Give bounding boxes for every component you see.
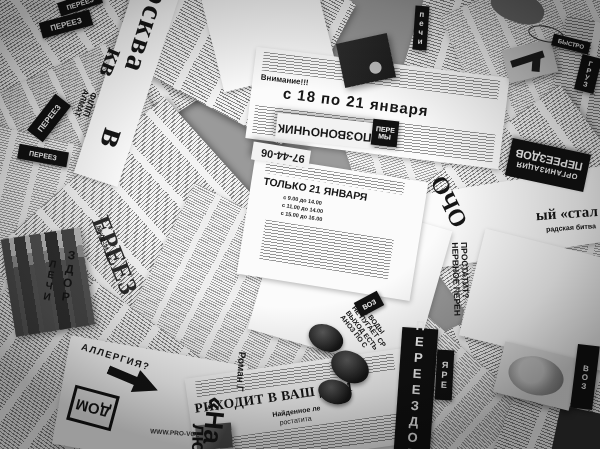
ad-tag-pere-my: ПЕРЕ МЫ [371, 119, 400, 148]
dom-label: ДОМ [74, 396, 112, 420]
fine-print [223, 413, 405, 449]
tag-label: ВОЗ [361, 297, 377, 310]
prostatit-vertical-text: ПРОСТАТИТ? НЕРВНОЕ ПЕРЕН [450, 242, 470, 316]
pereezdov-label: ПЕРЕЕЗДОВ [403, 318, 428, 449]
fine-print [259, 219, 394, 279]
tag-label: ВОЗ [579, 363, 591, 391]
moskva-masthead-tail: в [92, 124, 134, 154]
teapot-body [504, 351, 568, 401]
newspaper-collage-photo: осква в кв ФІЛІП АЛМАТ Внимание!!! с 18 … [0, 0, 600, 449]
tag-label: МЫ [378, 132, 391, 140]
pozvonochnik-headline: ПОЗВОНОЧНИК [277, 121, 372, 143]
roman-vertical-text: Роман Г [234, 351, 247, 391]
tag-label: ГРУЗ [581, 60, 595, 89]
nervnoe-line: НЕРВНОЕ ПЕРЕН [450, 242, 461, 316]
phone-number-upside: 97-44-06 [260, 146, 305, 164]
yare-label: ЯРЕ [439, 360, 451, 390]
gun-grip [532, 57, 541, 72]
tag-label: ПЕРЕЕЗ [29, 150, 58, 162]
tag-label: печи [415, 10, 426, 47]
yare-strip: ЯРЕ [435, 350, 455, 401]
